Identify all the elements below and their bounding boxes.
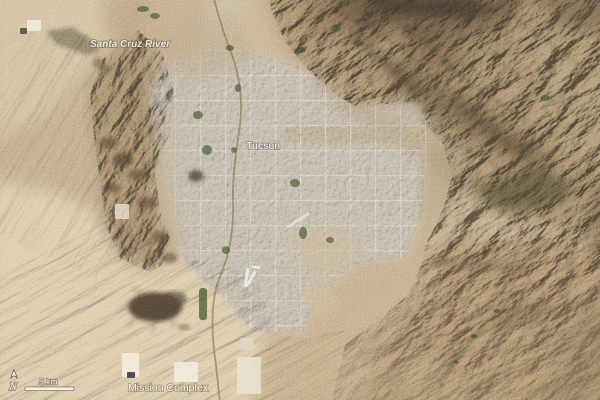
svg-text:N: N <box>8 379 18 393</box>
svg-text:Santa Cruz River: Santa Cruz River <box>90 39 171 50</box>
svg-text:5 km: 5 km <box>39 377 57 387</box>
svg-text:Mission Complex: Mission Complex <box>128 382 209 394</box>
svg-text:Tucson: Tucson <box>246 140 280 152</box>
